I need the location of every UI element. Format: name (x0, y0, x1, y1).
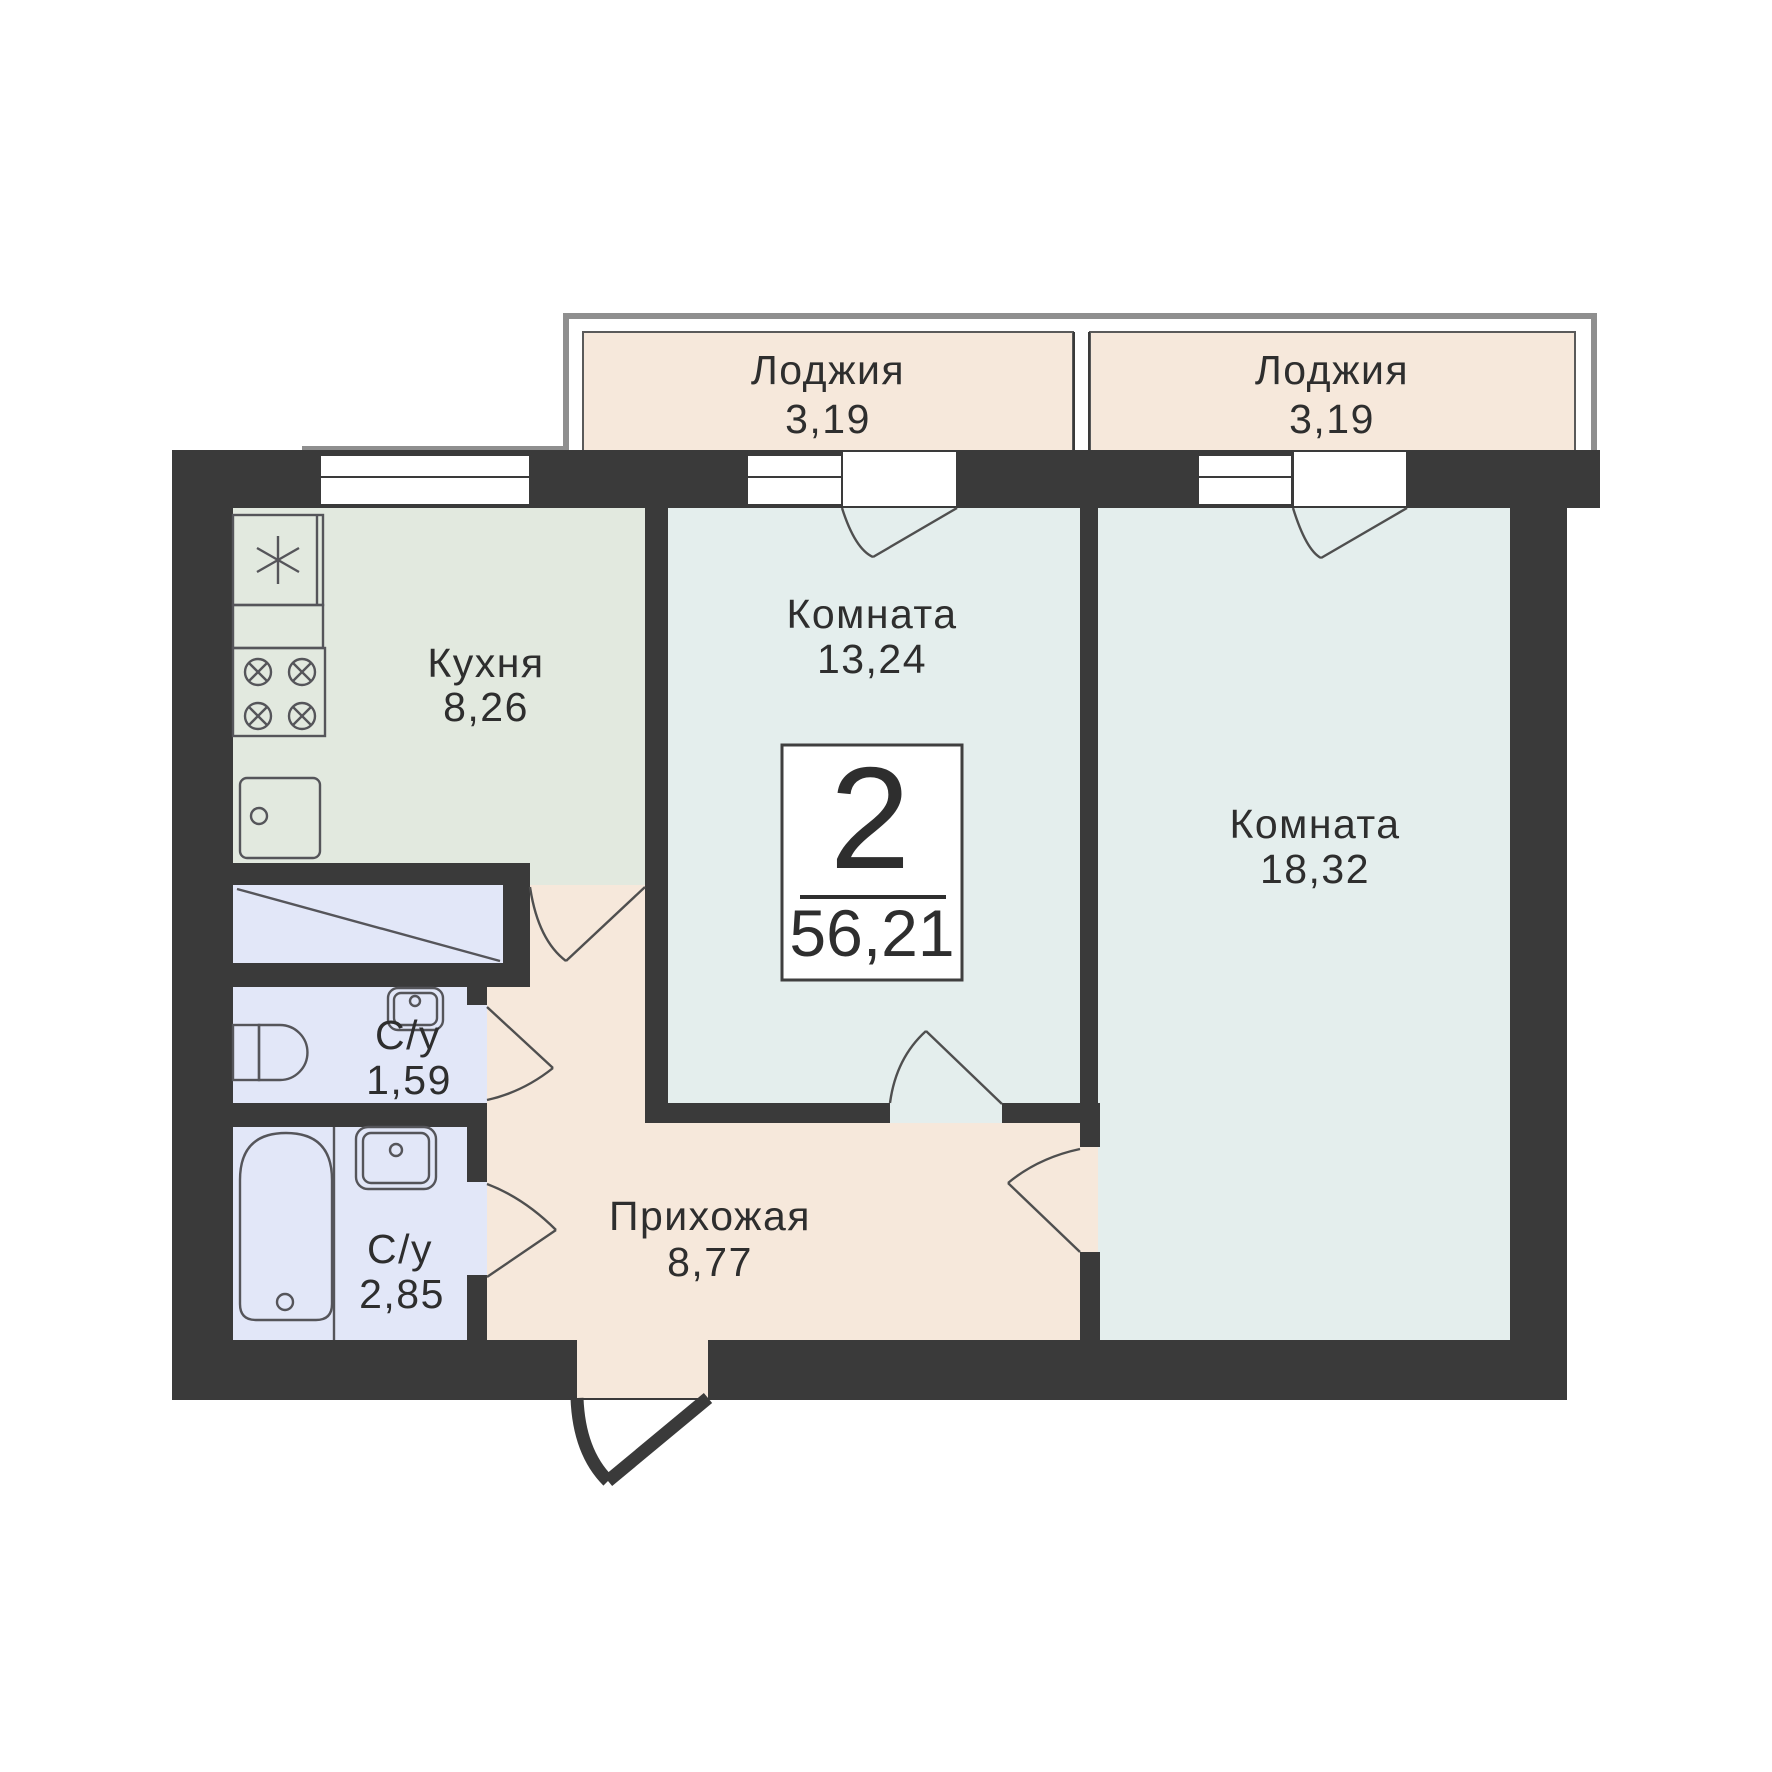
kitchen-name: Кухня (427, 640, 544, 686)
room-1-name: Комната (786, 591, 957, 637)
room-2-floor (1098, 508, 1510, 1340)
wardrobe-floor (233, 885, 530, 963)
room-1-window (747, 455, 842, 505)
loggia-left-name: Лоджия (751, 347, 905, 393)
bathroom-2-area: 2,85 (359, 1271, 445, 1317)
hallway-area: 8,77 (667, 1239, 753, 1285)
room-2-area: 18,32 (1260, 846, 1370, 892)
bathroom-2-name: С/у (367, 1226, 433, 1272)
room-2-door-opening (1080, 1147, 1098, 1252)
floor-plan-page: Лоджия 3,19 Лоджия 3,19 (0, 0, 1772, 1772)
floor-plan: Лоджия 3,19 Лоджия 3,19 (0, 0, 1772, 1772)
bathroom-1-area: 1,59 (366, 1057, 452, 1103)
badge-room-count: 2 (830, 737, 911, 899)
entry-door (577, 1398, 708, 1481)
room-2-name: Комната (1229, 801, 1400, 847)
room-2-window (1198, 455, 1292, 505)
loggia-right-area: 3,19 (1289, 396, 1375, 442)
entry-opening (577, 1340, 708, 1398)
loggia-right-name: Лоджия (1255, 347, 1409, 393)
kitchen-door-opening (530, 863, 645, 885)
loggia-divider (1073, 332, 1090, 452)
kitchen-area: 8,26 (443, 684, 529, 730)
loggia-left-area: 3,19 (785, 396, 871, 442)
room-1-area: 13,24 (817, 636, 927, 682)
hallway-name: Прихожая (609, 1193, 811, 1239)
loggia-right: Лоджия 3,19 (1090, 332, 1575, 452)
room-1-door-opening (890, 1103, 1002, 1123)
summary-badge: 2 56,21 (782, 737, 962, 980)
badge-total-area: 56,21 (789, 896, 954, 970)
loggia-left: Лоджия 3,19 (583, 332, 1073, 452)
kitchen-window (320, 455, 530, 505)
bathroom-1-name: С/у (375, 1012, 441, 1058)
